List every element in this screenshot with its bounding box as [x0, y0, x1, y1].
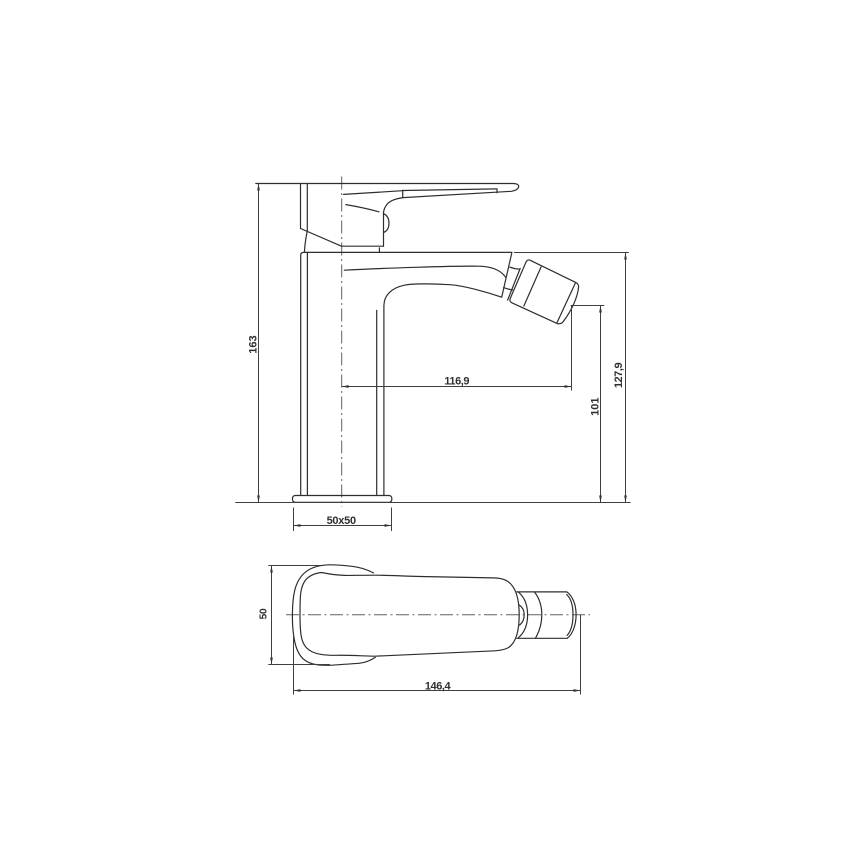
svg-text:127,9: 127,9	[613, 363, 625, 389]
svg-text:116,9: 116,9	[444, 375, 469, 387]
svg-text:146,4: 146,4	[425, 680, 452, 692]
svg-text:101: 101	[589, 398, 601, 416]
svg-text:50: 50	[259, 608, 270, 619]
svg-text:50x50: 50x50	[327, 515, 356, 527]
svg-text:163: 163	[247, 335, 259, 353]
